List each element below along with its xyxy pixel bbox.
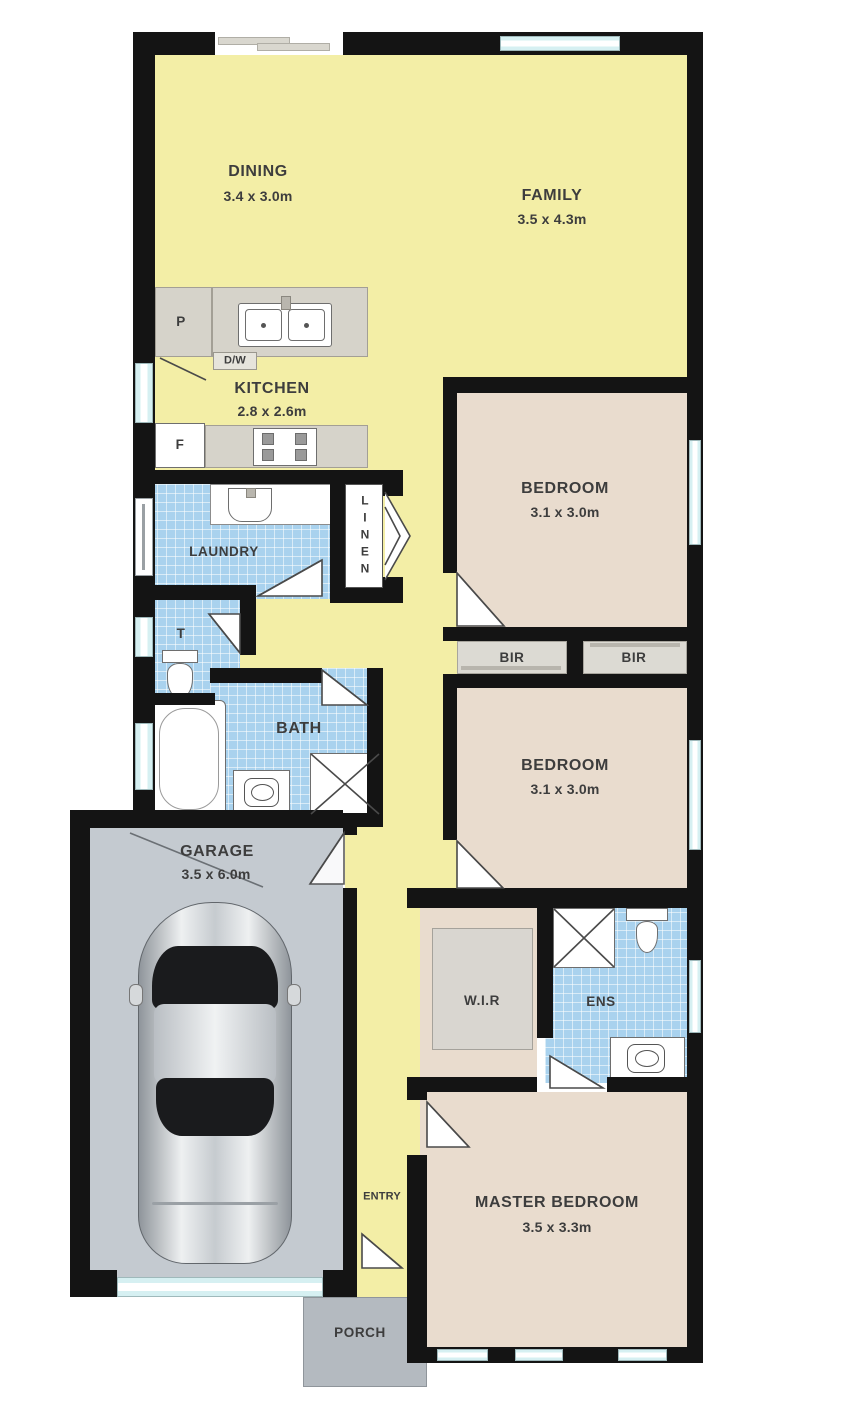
wall-bath-right: [367, 668, 383, 827]
bir1-rail: [461, 666, 561, 670]
laundry-label: LAUNDRY: [189, 544, 259, 560]
wall-garage-hall-upper: [343, 820, 357, 835]
master-label: MASTER BEDROOM: [475, 1194, 639, 1212]
wall-garage-top: [70, 810, 343, 828]
burner-2: [262, 449, 274, 461]
car: [138, 902, 292, 1264]
kitchen-dims: 2.8 x 2.6m: [238, 403, 307, 419]
bath-label: BATH: [276, 720, 322, 738]
bedroom1-dims: 3.1 x 3.0m: [531, 504, 600, 520]
wall-toilet-right: [240, 600, 256, 655]
wall-bed2-left: [443, 688, 457, 840]
bedroom2-window-right: [689, 740, 701, 850]
wall-toilet-bottom: [133, 693, 215, 705]
wall-wir-bottom: [407, 1077, 537, 1092]
entry-label: ENTRY: [363, 1191, 401, 1204]
toilet-label: T: [177, 626, 186, 642]
car-rear-window: [156, 1078, 274, 1136]
bedroom1-label: BEDROOM: [521, 480, 609, 498]
wall-master-left-lower: [407, 1155, 427, 1363]
burner-3: [295, 433, 307, 445]
servery-sill-lower: [257, 43, 330, 51]
bedroom2-dims: 3.1 x 3.0m: [531, 781, 600, 797]
wall-garage-bottom-left: [70, 1270, 117, 1297]
wall-master-left-upper: [407, 1092, 427, 1100]
wall-linen-nub-top: [383, 470, 403, 496]
faucet-dot-left: [261, 323, 266, 328]
bir1-label: BIR: [499, 650, 524, 666]
burner-4: [295, 449, 307, 461]
bath-vanity-basin: [251, 784, 274, 801]
wall-ens-bottom: [607, 1077, 687, 1092]
wall-garage-left: [70, 810, 90, 1297]
wall-bir-top: [443, 627, 703, 641]
wall-kitchen-laundry: [133, 470, 403, 484]
bir2-rail: [590, 643, 680, 647]
wall-bed2-wir: [407, 888, 687, 908]
wall-garage-bottom-right: [323, 1270, 357, 1297]
burner-1: [262, 433, 274, 445]
dining-dims: 3.4 x 3.0m: [224, 188, 293, 204]
floor-plan: DINING 3.4 x 3.0m FAMILY 3.5 x 4.3m KITC…: [0, 0, 867, 1413]
wall-bir-bottom: [443, 674, 703, 688]
bedroom2-label: BEDROOM: [521, 757, 609, 775]
wall-bath-top: [210, 668, 322, 683]
master-window-2: [515, 1349, 563, 1361]
wall-right: [687, 32, 703, 1363]
car-windshield: [152, 946, 278, 1010]
wir-shelving: [432, 928, 533, 1050]
ens-toilet-cistern: [626, 908, 668, 921]
wir-label: W.I.R: [464, 993, 500, 1009]
pantry-label: P: [176, 314, 186, 330]
fridge-label: F: [176, 437, 185, 453]
faucet-dot-right: [304, 323, 309, 328]
family-label: FAMILY: [522, 187, 583, 205]
garage-door: [117, 1277, 323, 1297]
wall-bed1-left: [443, 393, 457, 573]
toilet-window-left: [135, 617, 153, 657]
wall-laundry-toilet: [133, 585, 256, 600]
dining-label: DINING: [228, 163, 288, 181]
porch-label: PORCH: [334, 1325, 386, 1341]
bath-window-left: [135, 723, 153, 790]
wall-linen-nub-bottom: [383, 577, 403, 603]
dishwasher-label: D/W: [224, 355, 246, 368]
bathtub-inner: [159, 708, 219, 810]
master-window-3: [618, 1349, 667, 1361]
ensuite-window-right: [689, 960, 701, 1033]
kitchen-window-left: [135, 363, 153, 423]
linen-label: LINEN: [357, 494, 371, 579]
toilet-cistern: [162, 650, 198, 663]
family-window-top: [500, 36, 620, 51]
car-trunk-line: [152, 1202, 278, 1205]
family-dims: 3.5 x 4.3m: [518, 211, 587, 227]
wall-linen-left: [330, 470, 345, 603]
wall-wir-ens: [537, 908, 553, 1038]
bedroom1-window-right: [689, 440, 701, 545]
ens-shower: [553, 908, 615, 968]
master-window-1: [437, 1349, 488, 1361]
master-dims: 3.5 x 3.3m: [523, 1219, 592, 1235]
ens-label: ENS: [586, 994, 616, 1010]
bir2-label: BIR: [621, 650, 646, 666]
car-roof: [154, 1004, 276, 1084]
laundry-tap: [246, 488, 256, 498]
laundry-door-leaf: [142, 504, 145, 570]
garage-label: GARAGE: [180, 843, 254, 861]
wall-family-bed1: [443, 377, 703, 393]
wall-bir-mid: [567, 641, 583, 674]
garage-dims: 3.5 x 6.0m: [182, 866, 251, 882]
car-mirror-left: [129, 984, 143, 1006]
ens-vanity-basin: [635, 1050, 659, 1067]
kitchen-label: KITCHEN: [234, 380, 309, 398]
car-mirror-right: [287, 984, 301, 1006]
kitchen-tap: [281, 296, 291, 310]
wall-garage-hall-lower: [343, 888, 357, 1297]
